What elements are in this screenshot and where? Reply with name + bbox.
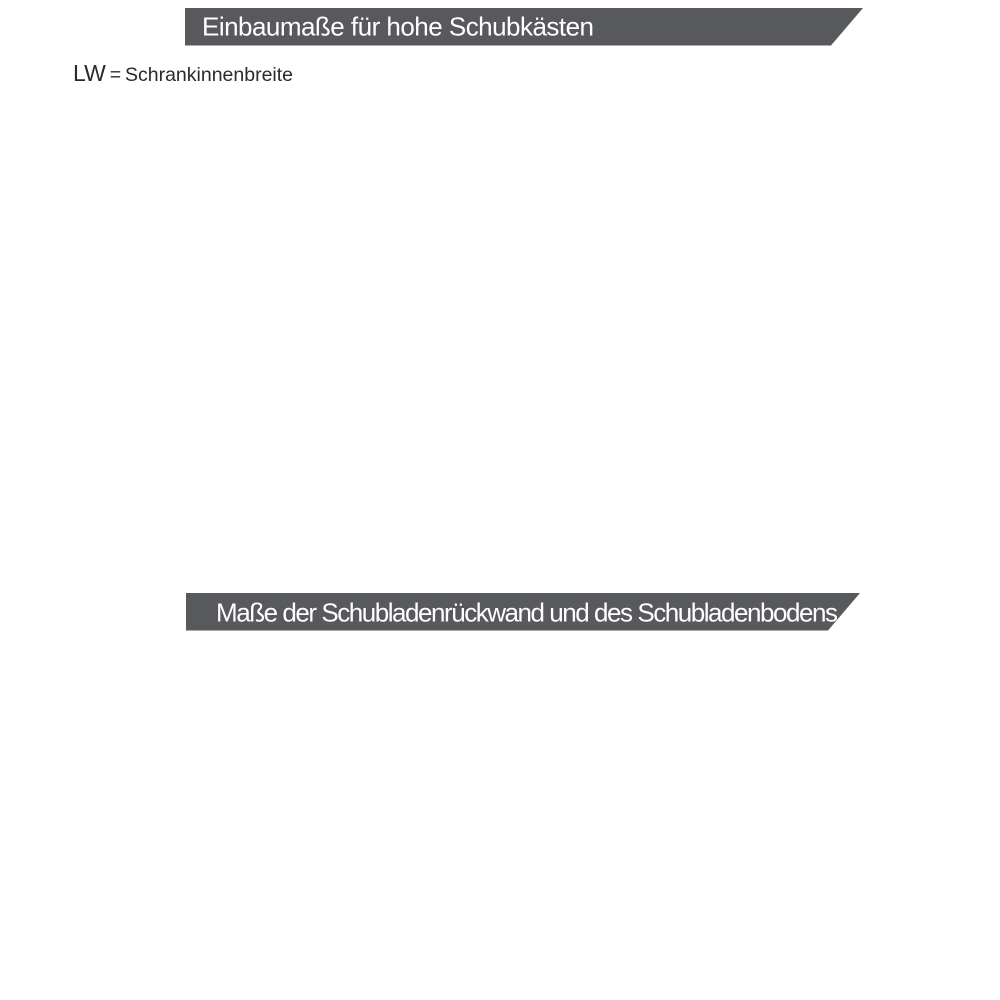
- svg-text:LW = Schrankinnenbreite: LW = Schrankinnenbreite: [73, 60, 293, 86]
- svg-text:Maße der Schubladenrückwand un: Maße der Schubladenrückwand und des Schu…: [216, 598, 838, 628]
- svg-text:Einbaumaße für hohe Schubkäste: Einbaumaße für hohe Schubkästen: [202, 12, 594, 42]
